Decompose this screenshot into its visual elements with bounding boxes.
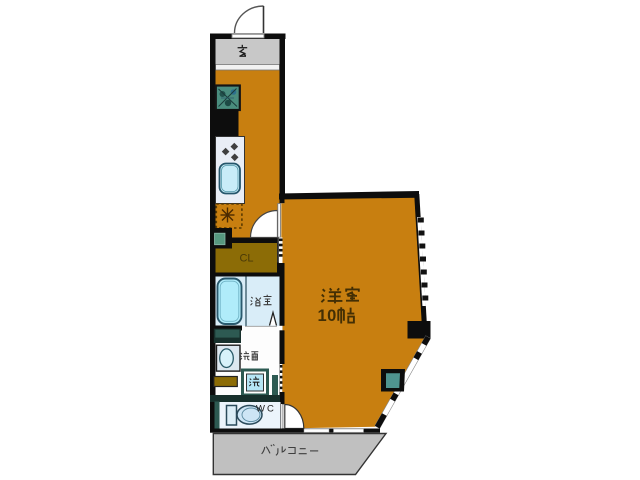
svg-text:WC: WC (256, 404, 276, 415)
svg-text:CL: CL (239, 253, 253, 265)
svg-text:10: 10 (318, 307, 337, 325)
